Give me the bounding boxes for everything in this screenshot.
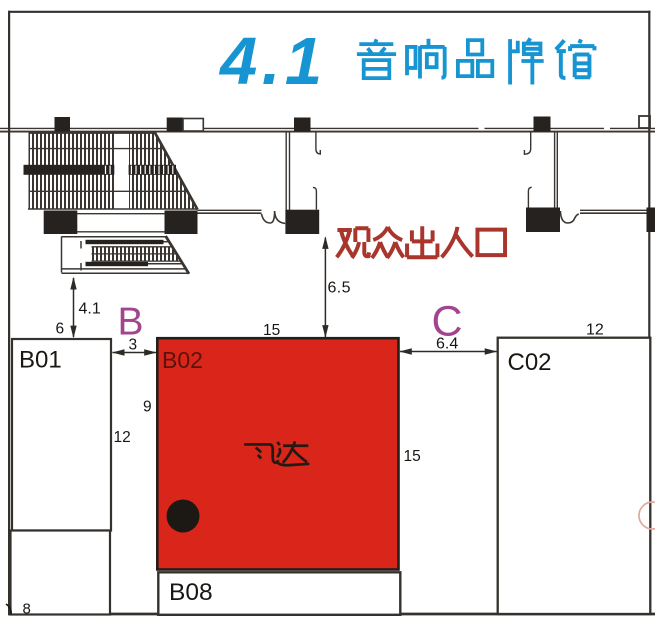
svg-text:6.4: 6.4 bbox=[436, 336, 458, 353]
svg-text:B08: B08 bbox=[169, 579, 213, 606]
svg-text:15: 15 bbox=[263, 322, 280, 339]
svg-text:6: 6 bbox=[56, 321, 65, 338]
svg-text:3: 3 bbox=[129, 337, 138, 354]
svg-text:12: 12 bbox=[114, 429, 131, 446]
svg-text:6.5: 6.5 bbox=[328, 279, 351, 296]
svg-text:4.1: 4.1 bbox=[79, 301, 101, 318]
svg-text:B02: B02 bbox=[162, 347, 203, 373]
svg-text:B01: B01 bbox=[19, 347, 62, 374]
svg-text:9: 9 bbox=[143, 399, 152, 416]
svg-text:4.1: 4.1 bbox=[218, 24, 327, 99]
svg-text:8: 8 bbox=[23, 601, 31, 618]
svg-text:12: 12 bbox=[586, 322, 604, 339]
svg-text:15: 15 bbox=[404, 448, 421, 465]
svg-text:C02: C02 bbox=[508, 349, 552, 376]
